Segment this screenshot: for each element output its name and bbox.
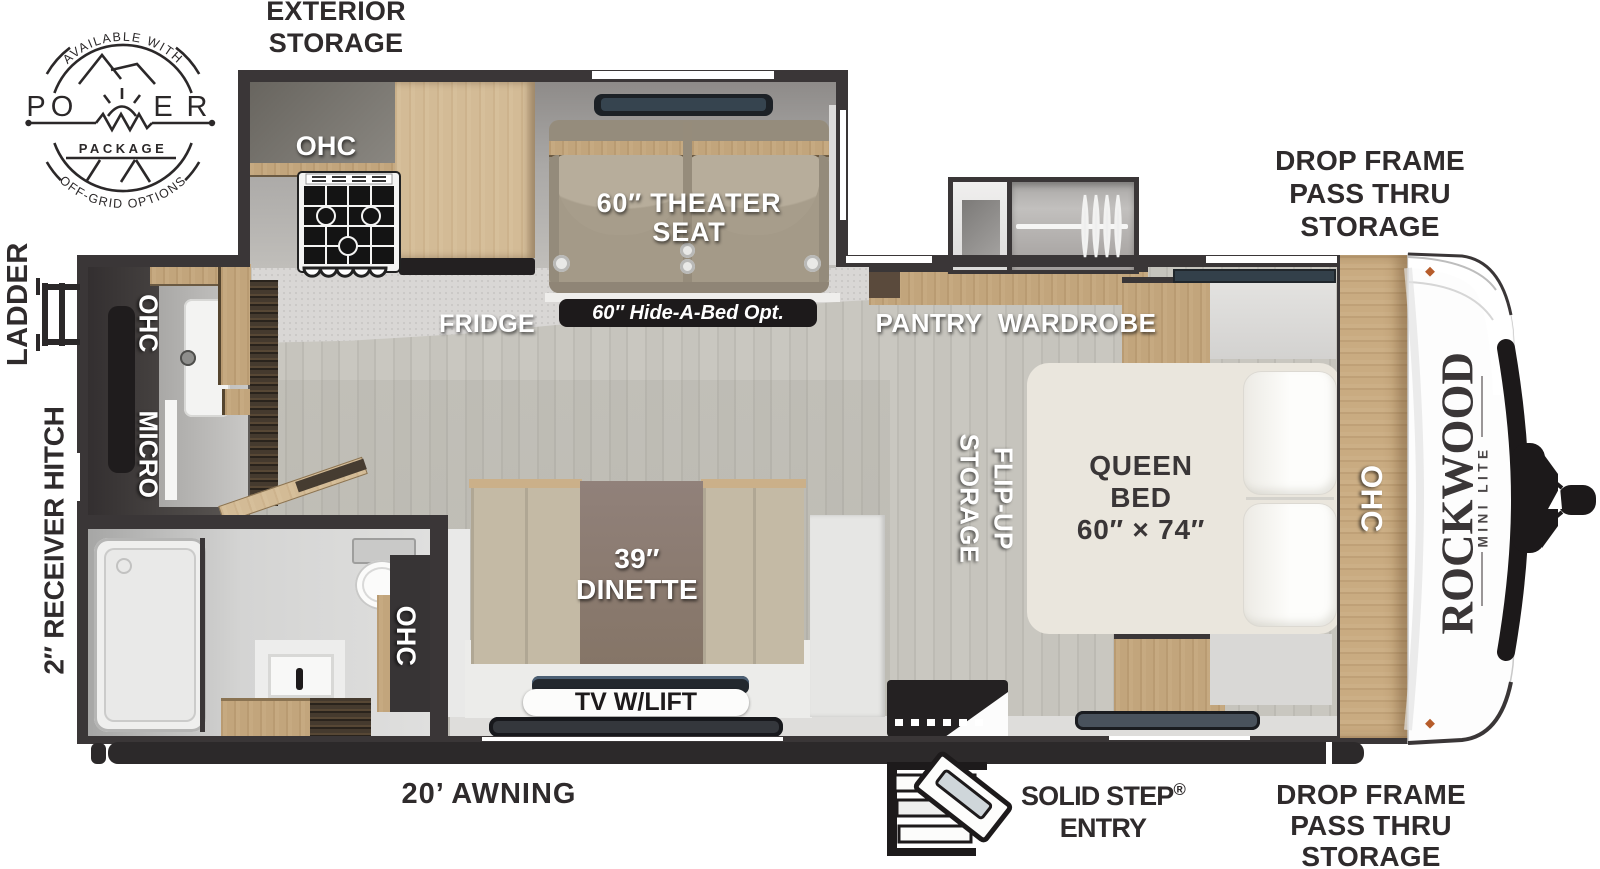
- svg-text:PACKAGE: PACKAGE: [79, 141, 168, 156]
- svg-text:R: R: [187, 91, 208, 123]
- svg-text:O: O: [51, 91, 74, 123]
- svg-text:P: P: [26, 91, 45, 123]
- svg-text:E: E: [153, 91, 172, 123]
